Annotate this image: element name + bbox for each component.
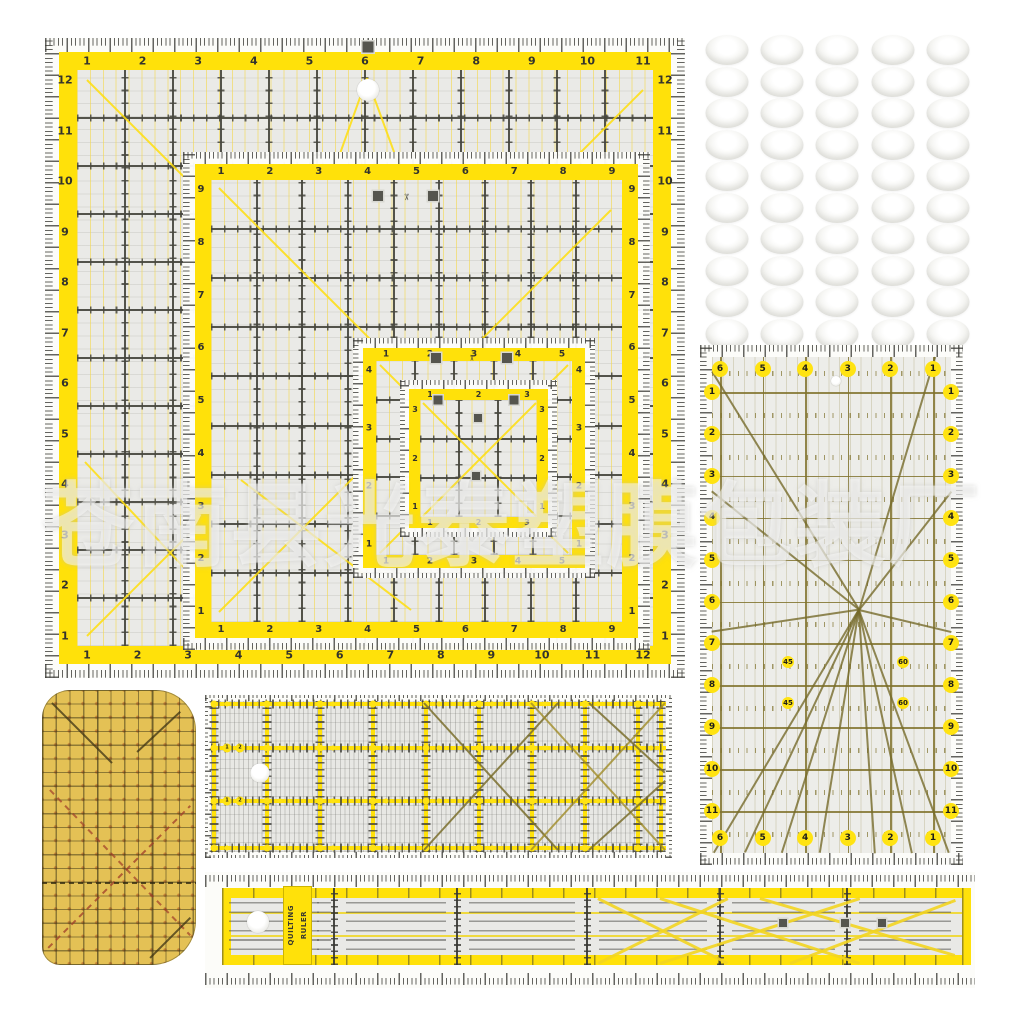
- grid-dot: [649, 799, 654, 804]
- mat-diagonal: [51, 702, 112, 763]
- edge-ticks-right: [548, 380, 557, 537]
- ruler-number: 6: [198, 343, 205, 353]
- numbered-dot: 2: [236, 797, 245, 806]
- ruler-number: 1: [576, 541, 582, 550]
- ruler-number: 6: [629, 343, 636, 353]
- brand-patch-icon: [430, 352, 443, 365]
- grid-dot: [278, 702, 283, 707]
- ruler-number: 6: [462, 167, 469, 177]
- edge-ticks-top: [353, 338, 595, 348]
- ruler-number: 2: [266, 625, 273, 635]
- ruler-number: 11: [57, 125, 72, 136]
- half-tick-row: [712, 748, 951, 753]
- grid-dot: [437, 799, 442, 804]
- edge-ticks-bottom: [400, 528, 557, 537]
- grid-dot: [476, 701, 483, 708]
- ruler-number: 8: [560, 167, 567, 177]
- grip-dot: [706, 98, 749, 128]
- ruler-number: 5: [413, 167, 420, 177]
- grip-dot: [706, 161, 749, 191]
- major-line: [454, 888, 461, 965]
- ruler-number: 1: [412, 503, 418, 511]
- grip-dots-grid: [700, 32, 980, 352]
- grip-dot: [816, 256, 859, 286]
- ruler-number: 5: [61, 428, 69, 439]
- grid-line-h: [712, 392, 951, 394]
- grid-dot: [264, 701, 271, 708]
- ruler-number: 3: [524, 391, 530, 399]
- number-badge: 11: [704, 803, 720, 819]
- grip-dot: [706, 224, 749, 254]
- grid-dot: [649, 746, 654, 751]
- grid-line-v: [495, 400, 502, 517]
- thin-yellow-line: [231, 912, 962, 914]
- ruler-number: 1: [218, 167, 225, 177]
- grid-dot: [331, 846, 336, 851]
- edge-ticks-bottom: [700, 853, 963, 865]
- grid-line-h: [211, 226, 622, 233]
- ruler-number: 10: [57, 176, 72, 187]
- number-badge: 6: [712, 830, 728, 846]
- ruler-number: 8: [198, 238, 205, 248]
- grip-dot: [706, 193, 749, 223]
- ruler-number: 7: [386, 650, 394, 661]
- number-badge: 6: [704, 594, 720, 610]
- grid-dot: [635, 845, 642, 852]
- grip-dot: [761, 319, 804, 349]
- brand-patch-icon: [473, 413, 484, 424]
- ruler-number: 5: [285, 650, 293, 661]
- grid-line-v: [369, 701, 378, 852]
- ruler-number: 9: [629, 185, 636, 195]
- number-badge: 5: [755, 830, 771, 846]
- ruler-number: 9: [61, 226, 69, 237]
- grid-dot: [423, 798, 430, 805]
- brand-patch-icon: [471, 471, 482, 482]
- grid-line-v: [720, 357, 722, 853]
- number-badge: 2: [882, 830, 898, 846]
- yellow-band: [962, 888, 971, 965]
- ruler-number: 6: [462, 625, 469, 635]
- ruler-brand-label: QUILTING RULER: [283, 886, 312, 965]
- number-badge: 5: [755, 361, 771, 377]
- angle-line: [712, 491, 860, 610]
- label-line-2: RULER: [300, 911, 308, 939]
- ruler-number: 3: [629, 502, 636, 512]
- ruler-number: 1: [383, 557, 389, 566]
- grip-dot: [761, 130, 804, 160]
- ruler-number: 4: [515, 557, 521, 566]
- ruler-number: 4: [250, 56, 258, 67]
- hanging-hole-icon: [357, 79, 379, 101]
- grid-line-v: [253, 180, 260, 622]
- ruler-number: 2: [134, 650, 142, 661]
- ruler-number: 1: [366, 541, 372, 550]
- angle-line: [711, 372, 859, 611]
- grip-dot: [706, 130, 749, 160]
- ruler-number: 7: [417, 56, 425, 67]
- angle-line: [819, 610, 860, 853]
- edge-ticks-left: [353, 338, 363, 578]
- ruler-number: 3: [539, 406, 545, 414]
- long-ruler: [205, 872, 975, 988]
- grid-line-v: [456, 400, 463, 517]
- number-badge: 1: [943, 384, 959, 400]
- grip-dot: [871, 319, 914, 349]
- ruler-number: 2: [266, 167, 273, 177]
- major-line: [584, 888, 591, 965]
- ruler-number: 12: [635, 650, 650, 661]
- grip-dot: [816, 319, 859, 349]
- ruler-number: 1: [539, 503, 545, 511]
- grip-dot: [871, 161, 914, 191]
- ruler-number: 11: [585, 650, 600, 661]
- grip-dot: [761, 98, 804, 128]
- grid-dot: [649, 846, 654, 851]
- grid-dot: [543, 799, 548, 804]
- grid-line-h: [712, 727, 951, 729]
- grip-dot: [761, 67, 804, 97]
- grip-dot: [816, 35, 859, 65]
- half-tick-row: [712, 497, 951, 502]
- grid-area: [712, 357, 951, 853]
- mat-diagonal: [149, 917, 190, 958]
- grid-dot: [317, 845, 324, 852]
- grid-dot: [582, 701, 589, 708]
- edge-ticks-right: [666, 695, 672, 858]
- label-line-1: QUILTING: [287, 905, 295, 946]
- square-ruler-3in: 123123321321: [400, 380, 557, 537]
- number-badge: 3: [943, 468, 959, 484]
- ruler-number: 7: [629, 291, 636, 301]
- ruler-number: 4: [366, 367, 372, 376]
- grid-dot: [635, 701, 642, 708]
- grid-line-v: [848, 357, 850, 853]
- grid-dot: [529, 745, 536, 752]
- dash-rows: [317, 902, 331, 954]
- ruler-number: 9: [609, 625, 616, 635]
- ruler-number: 5: [559, 557, 565, 566]
- grid-line-v: [528, 701, 537, 852]
- grid-dot: [490, 702, 495, 707]
- grid-line-h: [712, 811, 951, 813]
- grid-dot: [384, 799, 389, 804]
- grip-dot: [761, 161, 804, 191]
- grid-line-h: [211, 275, 622, 282]
- half-tick-row: [712, 706, 951, 711]
- number-badge: 5: [704, 552, 720, 568]
- grid-dot: [596, 702, 601, 707]
- grip-dot: [761, 35, 804, 65]
- grid-dot: [490, 846, 495, 851]
- ruler-number: 2: [661, 580, 669, 591]
- grid-line-h: [712, 602, 951, 604]
- ruler-number: 5: [661, 428, 669, 439]
- grid-dot: [211, 745, 218, 752]
- angle-label-badge: 45: [782, 656, 794, 668]
- brand-patch-icon: [372, 190, 385, 203]
- grip-dot: [871, 35, 914, 65]
- grip-dot: [761, 287, 804, 317]
- grip-dot: [816, 98, 859, 128]
- ruler-number: 4: [198, 449, 205, 459]
- ruler-number: 10: [580, 56, 595, 67]
- hanging-hole-icon: [247, 911, 269, 933]
- grid-line-v: [422, 701, 431, 852]
- grip-dot: [816, 287, 859, 317]
- ruler-number: 4: [364, 167, 371, 177]
- grid-dot: [582, 745, 589, 752]
- ruler-number: 2: [366, 483, 372, 492]
- grid-dot: [317, 701, 324, 708]
- number-badge: 11: [943, 803, 959, 819]
- brand-patch-icon: [508, 394, 520, 406]
- major-line: [331, 888, 338, 965]
- grip-dot: [926, 98, 969, 128]
- edge-ticks-top: [700, 345, 963, 357]
- number-badge: 10: [704, 761, 720, 777]
- grid-line-h: [712, 434, 951, 436]
- angle-line: [744, 610, 859, 854]
- grid-dot: [543, 846, 548, 851]
- grip-dot: [706, 256, 749, 286]
- numbered-dot: 1: [223, 744, 232, 753]
- edge-ticks-top: [205, 875, 975, 887]
- angle-label-badge: 60: [897, 656, 909, 668]
- half-tick-row: [712, 539, 951, 544]
- number-badge: 7: [704, 635, 720, 651]
- grid-dot: [582, 798, 589, 805]
- ruler-number: 6: [361, 56, 369, 67]
- grid-line-v: [345, 180, 352, 622]
- grid-dot: [370, 745, 377, 752]
- grid-dot: [211, 798, 218, 805]
- ruler-number: 3: [194, 56, 202, 67]
- ruler-number: 5: [413, 625, 420, 635]
- brand-patch-icon: [427, 190, 440, 203]
- grid-line-v: [763, 357, 765, 853]
- ruler-number: 7: [511, 167, 518, 177]
- grid-line-h: [712, 560, 951, 562]
- number-badge: 10: [943, 761, 959, 777]
- grip-dot: [926, 35, 969, 65]
- ruler-number: 8: [661, 277, 669, 288]
- ruler-number: 3: [61, 529, 69, 540]
- ruler-number: 12: [657, 75, 672, 86]
- half-tick-row: [712, 371, 951, 376]
- quilting-ruler-product-collage: 1234567891011123456789101112121110987654…: [0, 0, 1024, 1024]
- edge-ticks-left: [400, 380, 409, 537]
- grip-dot: [816, 67, 859, 97]
- ruler-number: 3: [661, 529, 669, 540]
- brand-patch-icon: [877, 918, 888, 929]
- grip-dot: [871, 224, 914, 254]
- edge-ticks-bottom: [183, 638, 650, 650]
- ruler-number: 1: [83, 650, 91, 661]
- ruler-number: 8: [629, 238, 636, 248]
- grid-line-v: [634, 701, 643, 852]
- brand-patch-icon: [778, 918, 789, 929]
- ruler-number: 5: [559, 350, 565, 359]
- number-badge: 4: [797, 830, 813, 846]
- grip-dot: [761, 193, 804, 223]
- grid-dot: [331, 746, 336, 751]
- ruler-number: 4: [61, 479, 69, 490]
- number-badge: 9: [943, 719, 959, 735]
- mat-diagonal: [136, 711, 180, 752]
- grip-dot: [816, 193, 859, 223]
- grid-dot: [423, 745, 430, 752]
- grid-dot: [264, 745, 271, 752]
- ruler-number: 5: [198, 396, 205, 406]
- grid-dot: [264, 798, 271, 805]
- edge-ticks-top: [183, 152, 650, 164]
- grip-dot: [926, 256, 969, 286]
- number-badge: 8: [704, 677, 720, 693]
- grid-dot: [278, 799, 283, 804]
- grid-dot: [490, 746, 495, 751]
- brand-patch-icon: [361, 40, 375, 54]
- scissors-icon: ✂: [401, 193, 410, 201]
- ruler-number: 2: [412, 455, 418, 463]
- grip-dot: [926, 287, 969, 317]
- ruler-number: 3: [198, 502, 205, 512]
- grid-line-h: [211, 324, 622, 331]
- angle-label-badge: 45: [782, 697, 794, 709]
- ruler-number: 8: [472, 56, 480, 67]
- brand-patch-icon: [432, 394, 444, 406]
- grip-dot: [926, 161, 969, 191]
- grid-dot: [278, 746, 283, 751]
- ruler-number: 2: [139, 56, 147, 67]
- brand-patch-icon: [501, 352, 514, 365]
- number-badge: 1: [925, 830, 941, 846]
- grid-line-v: [933, 357, 935, 853]
- grid-dot: [384, 746, 389, 751]
- grid-dot: [384, 702, 389, 707]
- grid-dot: [264, 845, 271, 852]
- edge-ticks-top: [400, 380, 557, 389]
- mat-diagonal: [47, 805, 190, 948]
- ruler-number: 9: [198, 185, 205, 195]
- ruler-number: 2: [576, 483, 582, 492]
- ruler-number: 9: [528, 56, 536, 67]
- edge-ticks-bottom: [353, 568, 595, 578]
- ruler-number: 11: [657, 125, 672, 136]
- grid-dot: [476, 845, 483, 852]
- angle-line: [858, 357, 936, 610]
- angle-label-badge: 60: [897, 697, 909, 709]
- half-tick-row: [712, 832, 951, 837]
- grid-line-v: [210, 701, 219, 852]
- ruler-number: 7: [511, 625, 518, 635]
- ruler-number: 1: [61, 631, 69, 642]
- ruler-number: 3: [576, 425, 582, 434]
- numbered-dot: 2: [236, 744, 245, 753]
- ruler-number: 1: [629, 607, 636, 617]
- mat-diagonal: [49, 789, 190, 935]
- ruler-number: 8: [437, 650, 445, 661]
- scissors-icon: ✂: [467, 355, 475, 362]
- number-badge: 3: [704, 468, 720, 484]
- edge-ticks-right: [585, 338, 595, 578]
- number-badge: 8: [943, 677, 959, 693]
- grid-dot: [437, 746, 442, 751]
- grip-dot: [926, 193, 969, 223]
- grip-dot: [761, 224, 804, 254]
- grid-line-v: [581, 701, 590, 852]
- ruler-number: 2: [539, 455, 545, 463]
- half-tick-row: [712, 581, 951, 586]
- grip-dot: [816, 130, 859, 160]
- thin-yellow-line: [231, 935, 962, 937]
- ruler-number: 7: [661, 327, 669, 338]
- number-badge: 4: [943, 510, 959, 526]
- dash-rows: [346, 902, 446, 954]
- grid-dot: [225, 702, 230, 707]
- grid-dot: [225, 846, 230, 851]
- ruler-number: 1: [427, 519, 433, 527]
- ruler-number: 2: [629, 554, 636, 564]
- number-badge: 6: [943, 594, 959, 610]
- grip-dot: [926, 67, 969, 97]
- angle-line: [858, 491, 951, 610]
- ruler-number: 2: [61, 580, 69, 591]
- grid-dot: [543, 702, 548, 707]
- ruler-number: 6: [61, 378, 69, 389]
- grid-line-h: [712, 476, 951, 478]
- ruler-number: 3: [524, 519, 530, 527]
- number-badge: 3: [840, 830, 856, 846]
- ruler-number: 3: [366, 425, 372, 434]
- ruler-number: 6: [336, 650, 344, 661]
- grid-dot: [317, 798, 324, 805]
- ruler-number: 12: [57, 75, 72, 86]
- grid-line-v: [475, 701, 484, 852]
- ruler-number: 3: [315, 167, 322, 177]
- grip-dot: [926, 319, 969, 349]
- ruler-number: 8: [560, 625, 567, 635]
- grip-dot: [706, 287, 749, 317]
- grid-dot: [476, 745, 483, 752]
- ruler-number: 3: [471, 557, 477, 566]
- grid-dot: [543, 746, 548, 751]
- grid-line-v: [890, 357, 892, 853]
- grid-dot: [596, 746, 601, 751]
- ruler-number: 2: [198, 554, 205, 564]
- edge-ticks-bottom: [205, 852, 672, 858]
- number-badge: 2: [882, 361, 898, 377]
- grip-dot: [871, 98, 914, 128]
- grid-line-h: [420, 436, 537, 443]
- grid-dot: [437, 702, 442, 707]
- dash-rows: [469, 902, 575, 954]
- ruler-number: 3: [315, 625, 322, 635]
- ruler-number: 4: [364, 625, 371, 635]
- grip-dot: [871, 287, 914, 317]
- grip-dot: [926, 130, 969, 160]
- numbered-dot: 1: [223, 797, 232, 806]
- edge-ticks-right: [671, 38, 685, 678]
- ruler-number: 10: [534, 650, 549, 661]
- ruler-number: 3: [412, 406, 418, 414]
- grip-dot: [871, 67, 914, 97]
- grip-dot: [871, 256, 914, 286]
- grid-dot: [596, 846, 601, 851]
- grid-area: 1212: [211, 701, 666, 852]
- angle-line: [859, 609, 951, 633]
- grid-dot: [211, 701, 218, 708]
